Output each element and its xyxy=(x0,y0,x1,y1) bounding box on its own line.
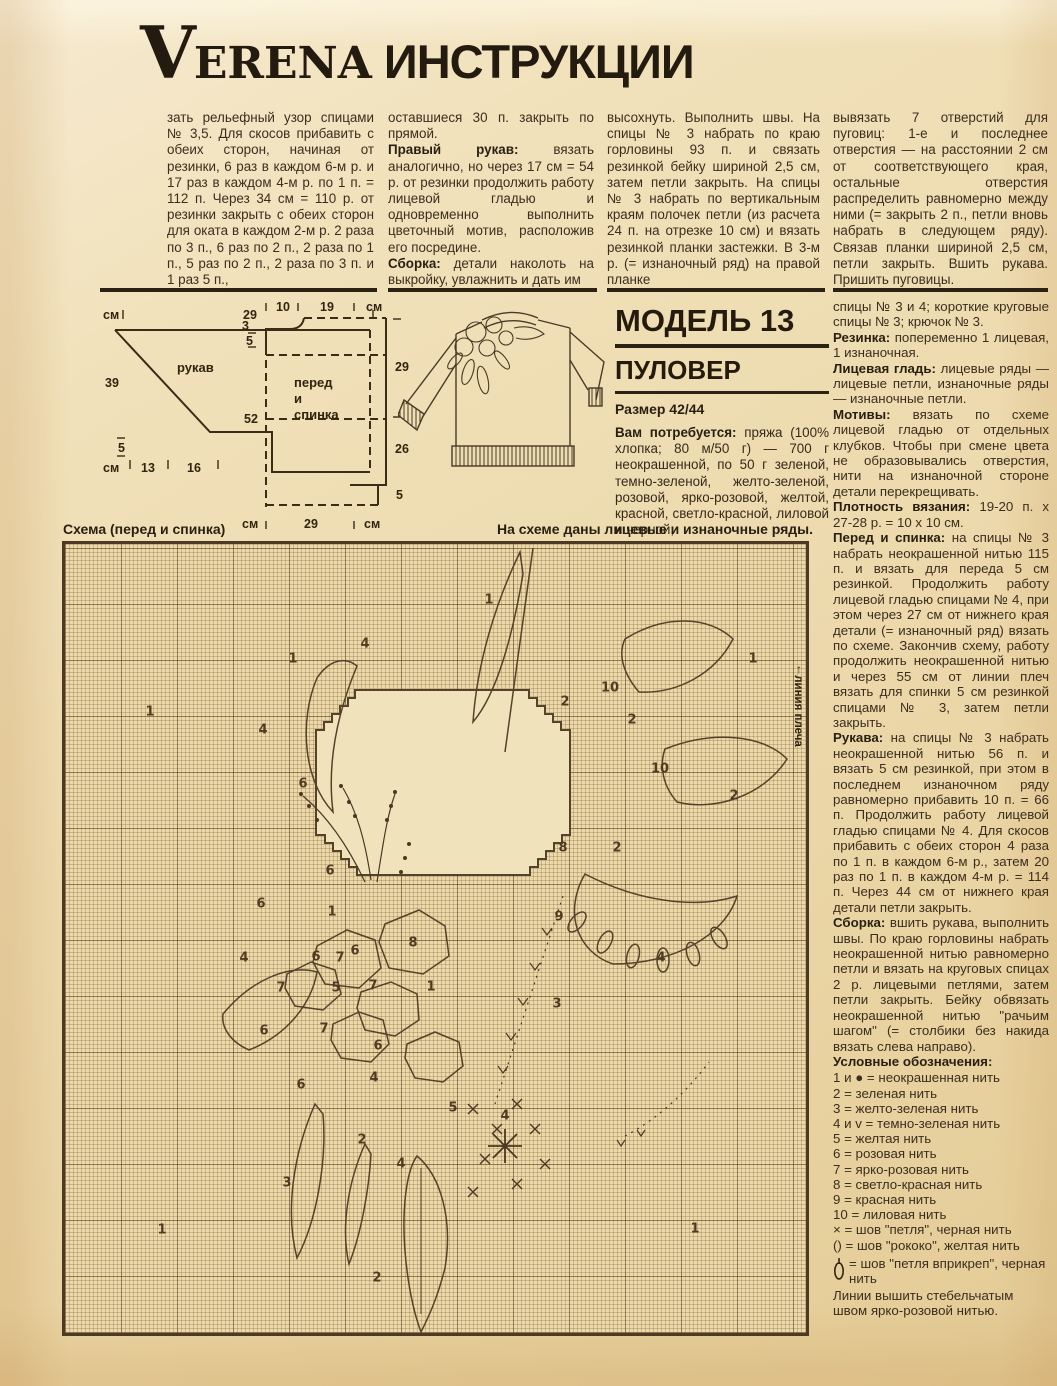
chart-region-number: 1 xyxy=(327,905,336,920)
knitting-chart: 1411141022102682661984676757134676465424… xyxy=(62,541,809,1336)
chart-region-number: 8 xyxy=(408,936,417,951)
front-top2: 19 xyxy=(320,300,334,314)
legend-item: 4 и v = темно-зеленая нить xyxy=(833,1116,1049,1131)
chart-region-number: 7 xyxy=(368,979,377,994)
chart-region-number: 3 xyxy=(282,1176,291,1191)
paragraph: Плотность вязания: 19-20 п. x 27-28 р. =… xyxy=(833,499,1049,530)
chart-region-number: 2 xyxy=(560,695,569,710)
chart-region-number: 1 xyxy=(145,705,154,720)
paragraph: спицы № 3 и 4; короткие круговые спицы №… xyxy=(833,299,1049,330)
chart-region-number: 5 xyxy=(448,1101,457,1116)
unit-label: см xyxy=(364,517,380,531)
front-left1: 3 xyxy=(242,319,249,333)
legend-item: 2 = зеленая нить xyxy=(833,1086,1049,1101)
paragraph: Мотивы: вязать по схеме лицевой гладью о… xyxy=(833,407,1049,499)
sleeve-height: 39 xyxy=(105,376,119,390)
legend-item: 9 = красная нить xyxy=(833,1192,1049,1207)
paragraph: Перед и спинка: на спицы № 3 набрать нео… xyxy=(833,530,1049,730)
legend-loop-text: = шов "петля вприкреп", черная нить xyxy=(849,1256,1049,1286)
chart-region-number: 5 xyxy=(331,981,340,996)
paragraph: Правый рукав: вязать аналогично, но чере… xyxy=(388,142,594,255)
chart-region-number: 4 xyxy=(369,1071,378,1086)
front-label-1: перед xyxy=(294,375,333,390)
front-label-3: спинка xyxy=(294,407,339,422)
chart-region-number: 4 xyxy=(258,723,267,738)
chart-region-number: 1 xyxy=(288,652,297,667)
chart-region-number: 4 xyxy=(396,1157,405,1172)
masthead-instructions: ИНСТРУКЦИИ xyxy=(372,35,694,88)
shoulder-line-label: ↑ линия плеча xyxy=(792,666,806,790)
legend-loop-item: = шов "петля вприкреп", черная нить xyxy=(833,1256,1049,1286)
instructions-column-2: оставшиеся 30 п. закрыть по прямой.Правы… xyxy=(388,110,594,288)
chart-region-number: 1 xyxy=(748,652,757,667)
section-rule xyxy=(388,288,597,292)
instructions-column-1: зать рельефный узор спицами № 3,5. Для с… xyxy=(167,110,374,288)
shoulder-line-text: линия плеча xyxy=(792,675,804,747)
schema-header-left: Схема (перед и спинка) xyxy=(63,521,225,537)
legend-item: 6 = розовая нить xyxy=(833,1146,1049,1161)
up-arrow-icon: ↑ xyxy=(796,662,802,676)
chart-region-number: 2 xyxy=(357,1133,366,1148)
chart-region-number: 4 xyxy=(500,1109,509,1124)
model-block: МОДЕЛЬ 13 ПУЛОВЕР Размер 42/44 Вам потре… xyxy=(615,303,829,538)
paragraph: Сборка: вшить рукава, выполнить швы. По … xyxy=(833,915,1049,1054)
section-rule xyxy=(833,288,1048,292)
masthead-initial: V xyxy=(140,10,194,95)
paragraph: Сборка: детали наколоть на выкройку, увл… xyxy=(388,256,594,288)
sleeve-rib-height: 5 xyxy=(118,441,125,455)
chart-region-number: 2 xyxy=(729,789,738,804)
chart-region-number: 4 xyxy=(360,637,369,652)
chart-region-number: 8 xyxy=(558,841,567,856)
front-left2: 5 xyxy=(246,334,253,348)
paragraph: высохнуть. Выполнить швы. На спицы № 3 н… xyxy=(607,110,820,288)
chart-region-number: 6 xyxy=(296,1078,305,1093)
pullover-illustration xyxy=(398,298,610,490)
paragraph: Рукава: на спицы № 3 набрать неокрашенно… xyxy=(833,730,1049,915)
legend-item: () = шов "рококо", желтая нить xyxy=(833,1238,1049,1253)
sleeve-width-b1: 13 xyxy=(141,461,155,475)
legend-note: Линии вышить стебельчатым швом ярко-розо… xyxy=(833,1288,1049,1318)
chart-region-number: 6 xyxy=(373,1039,382,1054)
legend-item: × = шов "петля", черная нить xyxy=(833,1222,1049,1237)
unit-label: см xyxy=(366,300,382,314)
masthead-verena: ERENA xyxy=(194,38,372,89)
chart-region-number: 7 xyxy=(319,1022,328,1037)
chart-region-number: 7 xyxy=(335,951,344,966)
legend-item: 3 = желто-зеленая нить xyxy=(833,1101,1049,1116)
right-instructions-column: спицы № 3 и 4; короткие круговые спицы №… xyxy=(833,299,1049,1319)
title-rule xyxy=(615,344,829,348)
masthead: VERENA ИНСТРУКЦИИ xyxy=(140,18,694,89)
legend-item: 10 = лиловая нить xyxy=(833,1207,1049,1222)
chart-region-number: 4 xyxy=(239,951,248,966)
chart-region-number: 1 xyxy=(484,593,493,608)
front-left3: 52 xyxy=(244,412,258,426)
instructions-column-3: высохнуть. Выполнить швы. На спицы № 3 н… xyxy=(607,110,820,288)
chart-motifs xyxy=(65,544,806,1333)
paragraph: Резинка: попеременно 1 лицевая, 1 изнано… xyxy=(833,330,1049,361)
size-label: Размер 42/44 xyxy=(615,401,829,417)
chart-region-number: 1 xyxy=(426,980,435,995)
magazine-page: VERENA ИНСТРУКЦИИ зать рельефный узор сп… xyxy=(0,0,1057,1386)
chart-region-number: 1 xyxy=(157,1223,166,1238)
instructions-column-4: вывязать 7 отверстий для пуговиц: 1-е и … xyxy=(833,110,1048,288)
right-column-text: спицы № 3 и 4; короткие круговые спицы №… xyxy=(833,299,1049,1069)
section-rule xyxy=(100,288,377,292)
paragraph: Лицевая гладь: лицевые ряды — лицевые пе… xyxy=(833,361,1049,407)
chart-region-number: 9 xyxy=(554,910,563,925)
chart-region-number: 2 xyxy=(612,841,621,856)
legend-item: 1 и ● = неокрашенная нить xyxy=(833,1070,1049,1085)
paragraph: Условные обозначения: xyxy=(833,1054,1049,1069)
front-top1: 10 xyxy=(276,300,290,314)
legend-item: 7 = ярко-розовая нить xyxy=(833,1162,1049,1177)
paragraph: зать рельефный узор спицами № 3,5. Для с… xyxy=(167,110,374,288)
unit-label: см xyxy=(103,308,119,322)
model-title: МОДЕЛЬ 13 xyxy=(615,303,829,339)
chart-region-number: 2 xyxy=(372,1271,381,1286)
schema-header-right: На схеме даны лицевые и изнаночные ряды. xyxy=(497,521,813,537)
neckline-cutout xyxy=(316,690,570,875)
symbol-legend: 1 и ● = неокрашенная нить2 = зеленая нит… xyxy=(833,1070,1049,1252)
chart-region-number: 2 xyxy=(627,713,636,728)
section-rule xyxy=(607,288,825,292)
chart-region-number: 6 xyxy=(259,1024,268,1039)
chart-region-number: 3 xyxy=(552,997,561,1012)
front-bottom: 29 xyxy=(304,517,318,531)
chart-region-number: 6 xyxy=(256,897,265,912)
legend-item: 8 = светло-красная нить xyxy=(833,1177,1049,1192)
paragraph: вывязать 7 отверстий для пуговиц: 1-е и … xyxy=(833,110,1048,288)
legend-item: 5 = желтая нить xyxy=(833,1131,1049,1146)
paragraph: оставшиеся 30 п. закрыть по прямой. xyxy=(388,110,594,142)
unit-label: см xyxy=(242,517,258,531)
front-label-2: и xyxy=(294,391,302,406)
chart-region-number: 7 xyxy=(276,981,285,996)
front-right3: 5 xyxy=(396,488,403,502)
loop-stitch-icon xyxy=(833,1257,845,1281)
chart-region-number: 6 xyxy=(325,864,334,879)
chart-region-number: 6 xyxy=(350,944,359,959)
model-subtitle: ПУЛОВЕР xyxy=(615,355,829,386)
chart-region-number: 6 xyxy=(298,777,307,792)
chart-region-number: 10 xyxy=(651,762,669,777)
sleeve-width-b2: 16 xyxy=(187,461,201,475)
chart-region-number: 4 xyxy=(656,951,665,966)
unit-label: см xyxy=(103,461,119,475)
sleeve-label: рукав xyxy=(177,360,214,375)
chart-region-number: 1 xyxy=(690,1222,699,1237)
subtitle-rule xyxy=(615,391,829,395)
chart-region-number: 10 xyxy=(601,681,619,696)
chart-region-number: 6 xyxy=(311,950,320,965)
